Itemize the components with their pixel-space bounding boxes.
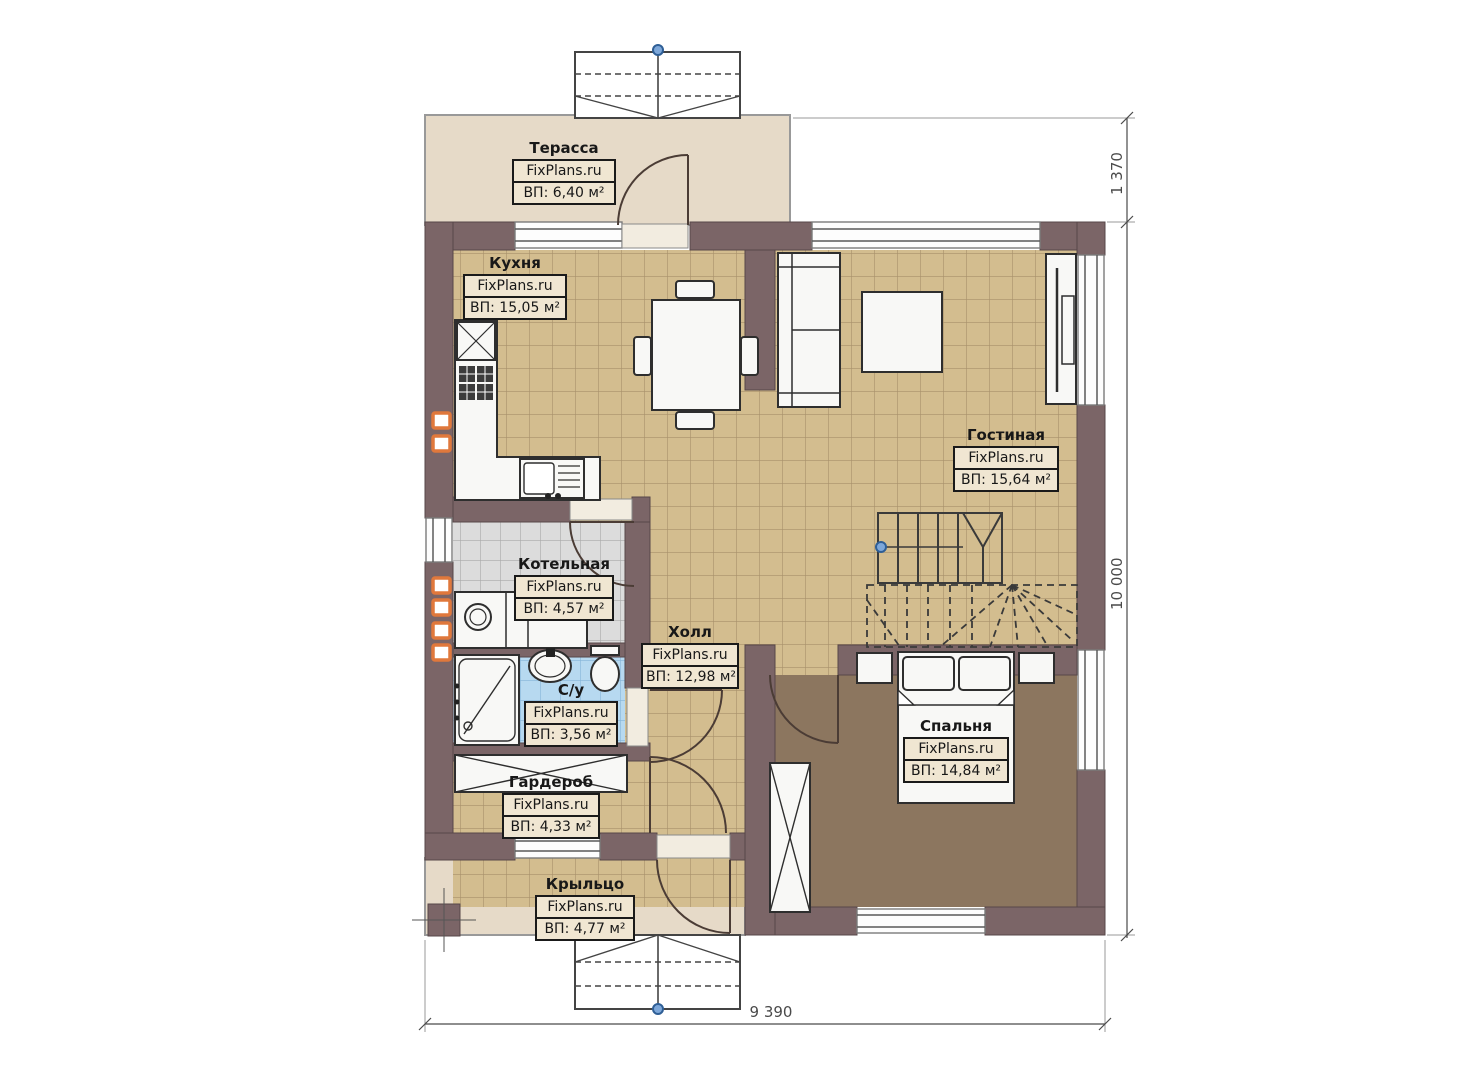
watermark-text: FixPlans.ru <box>955 448 1057 470</box>
room-label-bedroom: Спальня FixPlans.ru ВП: 14,84 м² <box>903 718 1009 783</box>
room-area: ВП: 4,57 м² <box>516 599 612 619</box>
floor-plan-page: Терасса FixPlans.ru ВП: 6,40 м² Кухня Fi… <box>0 0 1473 1080</box>
room-area: ВП: 6,40 м² <box>514 183 614 203</box>
room-info-box: FixPlans.ru ВП: 14,84 м² <box>903 737 1009 783</box>
exterior-steps-top <box>575 52 740 118</box>
dimension-bottom-total: 9 390 <box>736 1003 806 1021</box>
room-info-box: FixPlans.ru ВП: 4,33 м² <box>502 793 600 839</box>
room-info-box: FixPlans.ru ВП: 15,05 м² <box>463 274 567 320</box>
watermark-text: FixPlans.ru <box>465 276 565 298</box>
room-label-wardrobe: Гардероб FixPlans.ru ВП: 4,33 м² <box>502 774 600 839</box>
room-name: Гардероб <box>502 774 600 791</box>
room-label-boiler: Котельная FixPlans.ru ВП: 4,57 м² <box>514 556 614 621</box>
bedroom-closet <box>770 763 810 912</box>
dining-table <box>634 281 758 429</box>
room-name: Крыльцо <box>535 876 635 893</box>
coffee-table <box>862 292 942 372</box>
living-top-window <box>812 222 1040 248</box>
room-label-hall: Холл FixPlans.ru ВП: 12,98 м² <box>641 624 739 689</box>
room-area: ВП: 4,33 м² <box>504 817 598 837</box>
living-right-window <box>1078 255 1104 405</box>
room-label-terrace: Терасса FixPlans.ru ВП: 6,40 м² <box>512 140 616 205</box>
room-name: Котельная <box>514 556 614 573</box>
room-name: Кухня <box>463 255 567 272</box>
room-area: ВП: 3,56 м² <box>526 725 616 745</box>
room-info-box: FixPlans.ru ВП: 4,57 м² <box>514 575 614 621</box>
sofa <box>778 253 840 407</box>
room-name: Холл <box>641 624 739 641</box>
watermark-text: FixPlans.ru <box>514 161 614 183</box>
exterior-steps-bottom <box>575 935 740 1009</box>
room-info-box: FixPlans.ru ВП: 4,77 м² <box>535 895 635 941</box>
watermark-text: FixPlans.ru <box>504 795 598 817</box>
nightstand-left <box>857 653 892 683</box>
room-area: ВП: 15,64 м² <box>955 470 1057 490</box>
room-label-living: Гостиная FixPlans.ru ВП: 15,64 м² <box>953 427 1059 492</box>
room-area: ВП: 15,05 м² <box>465 298 565 318</box>
bedroom-bottom-window <box>857 909 985 933</box>
watermark-text: FixPlans.ru <box>516 577 612 599</box>
floor-plan-canvas <box>0 0 1473 1080</box>
room-name: Спальня <box>903 718 1009 735</box>
tv-stand <box>1046 254 1076 404</box>
room-name: Гостиная <box>953 427 1059 444</box>
shower-cabin <box>455 655 520 745</box>
watermark-text: FixPlans.ru <box>643 645 737 667</box>
kitchen-sink <box>520 459 584 499</box>
kitchen-terrace-window <box>515 222 622 248</box>
room-area: ВП: 14,84 м² <box>905 761 1007 781</box>
watermark-text: FixPlans.ru <box>537 897 633 919</box>
room-info-box: FixPlans.ru ВП: 3,56 м² <box>524 701 618 747</box>
room-area: ВП: 4,77 м² <box>537 919 633 939</box>
room-label-bathroom: С/у FixPlans.ru ВП: 3,56 м² <box>524 682 618 747</box>
room-label-kitchen: Кухня FixPlans.ru ВП: 15,05 м² <box>463 255 567 320</box>
watermark-text: FixPlans.ru <box>905 739 1007 761</box>
room-label-porch: Крыльцо FixPlans.ru ВП: 4,77 м² <box>535 876 635 941</box>
watermark-text: FixPlans.ru <box>526 703 616 725</box>
bedroom-right-window <box>1078 650 1104 770</box>
room-info-box: FixPlans.ru ВП: 12,98 м² <box>641 643 739 689</box>
room-info-box: FixPlans.ru ВП: 15,64 м² <box>953 446 1059 492</box>
room-name: С/у <box>524 682 618 699</box>
dimension-right-total: 10 000 <box>1108 558 1126 611</box>
room-name: Терасса <box>512 140 616 157</box>
boiler-left-window <box>426 518 452 562</box>
room-area: ВП: 12,98 м² <box>643 667 737 687</box>
nightstand-right <box>1019 653 1054 683</box>
dimension-right-top: 1 370 <box>1108 152 1126 195</box>
room-info-box: FixPlans.ru ВП: 6,40 м² <box>512 159 616 205</box>
